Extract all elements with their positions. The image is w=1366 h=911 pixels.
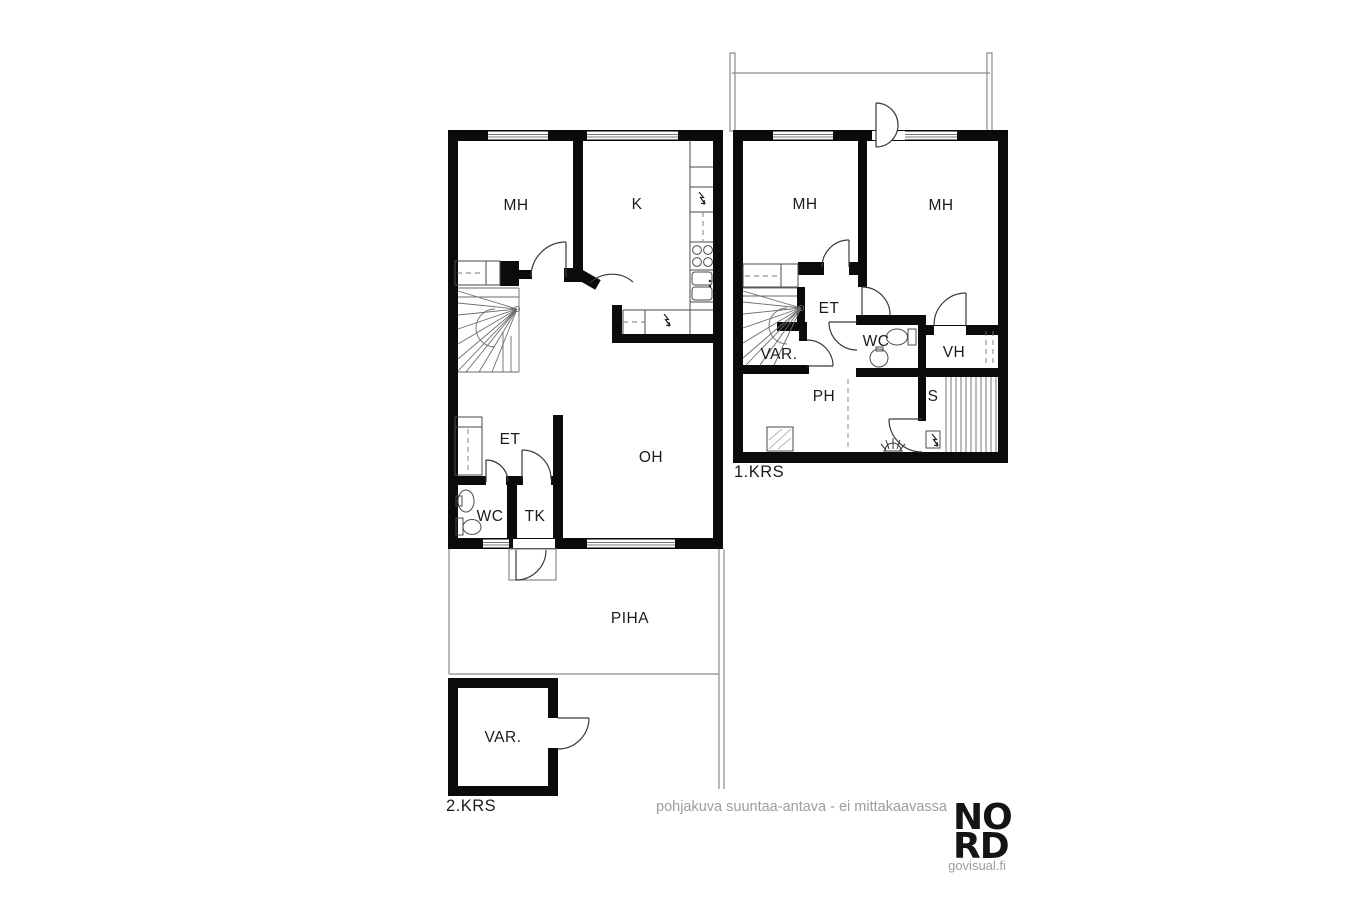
room-label-sauna: S — [928, 388, 939, 405]
kitchen-fixtures — [623, 140, 713, 334]
door-arc — [807, 340, 833, 366]
door-arc — [934, 293, 966, 325]
floor-plan-drawing: MH K ET WC TK OH PIHA VAR. 2.KRS — [0, 0, 1366, 911]
room-label-bedroom-right: MH — [928, 197, 953, 214]
sink-icon — [456, 490, 474, 512]
room-label-bedroom: MH — [503, 197, 528, 214]
door-arc — [822, 240, 849, 267]
floor-label-ground: 1.KRS — [734, 463, 784, 481]
door-arc — [889, 419, 922, 452]
kitchen-counter — [623, 310, 713, 334]
washing-machine — [767, 427, 793, 451]
kitchen-sink-icon — [692, 272, 712, 300]
window — [905, 131, 957, 140]
door-arc — [531, 242, 566, 277]
lower-wardrobe — [743, 264, 798, 287]
room-label-storage: VAR. — [760, 346, 797, 363]
electric-bolt-icon — [932, 434, 938, 446]
upper-floor-plan: MH K ET WC TK OH PIHA VAR. 2.KRS — [446, 130, 724, 815]
electric-bolt-icon — [699, 192, 705, 204]
room-label-washroom: PH — [813, 388, 836, 405]
window — [587, 131, 678, 140]
entry-door-opening — [513, 539, 555, 548]
window — [773, 131, 833, 140]
lower-walls — [733, 130, 1008, 463]
window — [587, 539, 675, 548]
floor-plan-page: MH K ET WC TK OH PIHA VAR. 2.KRS — [0, 0, 1366, 911]
closet-rail — [986, 331, 993, 366]
disclaimer-text: pohjakuva suuntaa-antava - ei mittakaava… — [656, 799, 948, 815]
window — [488, 131, 548, 140]
electric-bolt-icon — [664, 314, 670, 326]
window — [483, 539, 509, 548]
room-label-vestibule: TK — [525, 508, 546, 525]
upper-staircase — [458, 288, 520, 372]
stove-icon — [693, 246, 713, 267]
room-label-kitchen: K — [632, 196, 643, 213]
wardrobe — [455, 417, 482, 475]
door-arc — [829, 322, 857, 350]
yard-boundary — [449, 549, 724, 789]
wardrobe — [455, 261, 500, 285]
door-arc — [486, 460, 508, 482]
yard-label: PIHA — [611, 610, 649, 627]
door-arc — [862, 287, 890, 315]
room-label-bedroom-left: MH — [792, 196, 817, 213]
brand-logo: NO RD govisual.fi — [948, 797, 1012, 873]
room-label-hall: ET — [819, 300, 840, 317]
footer: pohjakuva suuntaa-antava - ei mittakaava… — [656, 797, 1012, 873]
sauna-benches — [946, 377, 996, 452]
upper-walls — [448, 130, 723, 549]
brand-url: govisual.fi — [948, 858, 1006, 873]
sink-icon — [870, 347, 888, 367]
room-label-closet: VH — [943, 344, 966, 361]
door-arc — [558, 718, 589, 749]
terrace — [730, 53, 992, 131]
room-label-living-room: OH — [639, 449, 663, 466]
room-label-toilet: WC — [863, 333, 890, 350]
room-label-toilet: WC — [477, 508, 504, 525]
door-arc — [522, 450, 551, 479]
floor-label-upper: 2.KRS — [446, 797, 496, 815]
storage-label: VAR. — [484, 729, 521, 746]
electric-panel-icon — [926, 431, 940, 448]
toilet-icon — [887, 329, 917, 345]
lower-floor-plan: MH MH ET VAR. WC VH PH S 1.KRS — [730, 53, 1008, 481]
exterior-door — [509, 549, 556, 580]
room-label-hall: ET — [500, 431, 521, 448]
